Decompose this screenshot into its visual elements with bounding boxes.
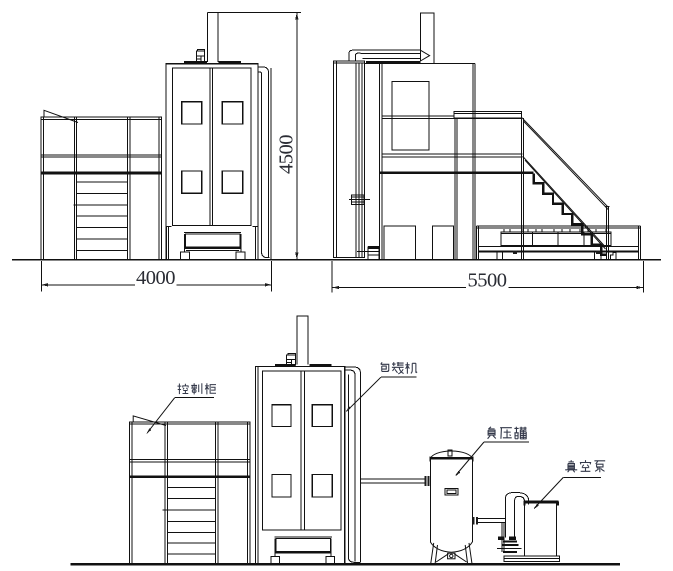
svg-text:4000: 4000 [136,267,175,289]
svg-text:5500: 5500 [468,270,507,292]
svg-text:4500: 4500 [276,135,298,174]
